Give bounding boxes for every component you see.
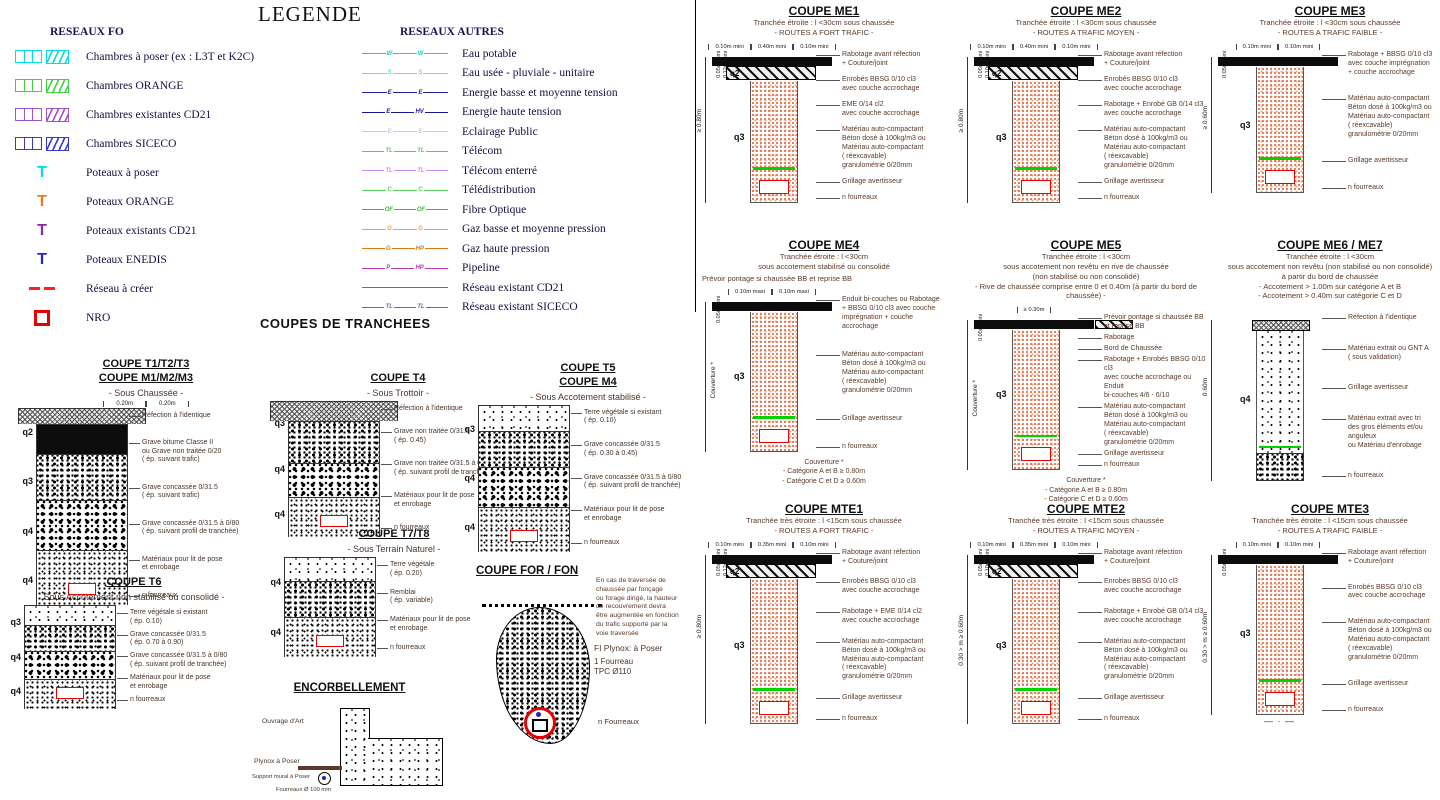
line-segment	[362, 151, 384, 152]
dimension-label: 0.40m mini	[1013, 44, 1055, 50]
coupe-subtitle: - ROUTES A FORT TRAFIC -	[700, 28, 948, 38]
line-segment	[362, 170, 384, 171]
line-segment	[394, 209, 416, 210]
coupe-title: COUPE ME5	[962, 238, 1210, 252]
trench-fill	[750, 312, 798, 452]
line-segment	[423, 73, 448, 74]
line-marker: G	[386, 226, 393, 232]
annotation-label: Rabotage avant réfection + Couture/joint	[842, 549, 946, 567]
grillage-avertisseur	[753, 416, 795, 419]
chamber-cell	[33, 109, 41, 120]
soil-layer	[478, 405, 570, 431]
coupe-me4: COUPE ME4Tranchée étroite : l <30cmsous …	[700, 238, 948, 486]
legend-item: CCTélédistribution	[362, 181, 692, 201]
layer-label: Grave concassée 0/31.5 à 0/80 ( ép. suiv…	[130, 652, 258, 670]
trench-column	[284, 557, 376, 657]
coupe-subtitle: (non stabilisé ou non consolidé)	[962, 272, 1210, 282]
annotation-label: Enrobés BBSG 0/10 cl3 avec couche accroc…	[1104, 76, 1208, 94]
line-sample-icon: WW	[362, 51, 448, 57]
chamber-cell	[16, 138, 25, 149]
annotation-label: Rabotage avant réfection + Couture/joint	[1348, 549, 1440, 567]
left-dim-line	[705, 555, 706, 724]
dimension-label: 0.10m mini	[970, 44, 1012, 50]
legend-item: TPoteaux existants CD21	[6, 216, 356, 245]
coupe-subtitle: Tranchée très étroite : l <15cm sous cha…	[962, 516, 1210, 526]
soil-layer	[284, 557, 376, 581]
fourreau-dot	[536, 712, 541, 717]
annotation-labels: Réfection à l'identiqueMatériau extrait …	[1348, 314, 1440, 481]
dimension-label: 0.10m mini	[793, 542, 835, 548]
coupe-subtitle: sous accotement non revêtu en rive de ch…	[962, 262, 1210, 272]
fourreau-box	[532, 719, 548, 732]
line-segment	[426, 170, 448, 171]
legend-item-label: Télécom enterré	[448, 165, 537, 177]
line-marker: HP	[415, 246, 425, 252]
line-sample-icon: GG	[362, 226, 448, 232]
annotation-label: Grillage avertisseur	[1348, 680, 1440, 689]
coupe-subtitle: Tranchée étroite : l <30cm	[700, 252, 948, 262]
line-segment	[362, 268, 385, 269]
annotation-labels: Rabotage + BBSG 0/10 cl3 avec couche imp…	[1348, 51, 1440, 193]
axis-centerline: — · —	[1264, 716, 1295, 726]
pole-t-icon: T	[37, 165, 47, 181]
legend-item-label: Energie basse et moyenne tension	[448, 87, 618, 99]
annotation-labels: Rabotage avant réfection + Couture/joint…	[1104, 51, 1208, 203]
line-sample-icon: CC	[362, 187, 448, 193]
couverture-note-line: Couverture *	[962, 476, 1210, 485]
annotation-label: Matériau extrait ou GNT A ( sous validat…	[1348, 345, 1440, 363]
legend-item: SSEau usée - pluviale - unitaire	[362, 64, 692, 84]
line-segment	[393, 53, 417, 54]
line-marker: HV	[414, 109, 424, 115]
encorbellement-drawing: Ouvrage d'Art Plynox à Poser Support mur…	[252, 694, 447, 794]
annotation-label: Enduit bi-couches ou Rabotage + BBSG 0/1…	[842, 296, 946, 332]
chambers-symbol	[6, 137, 78, 151]
annotation-label: Grillage avertisseur	[1104, 450, 1208, 459]
dimension-label: 0.10m maxi	[772, 289, 816, 295]
asphalt-cap	[712, 302, 832, 311]
legend-item-label: Pipeline	[448, 262, 500, 274]
couverture-note-line: - Catégorie A et B ≥ 0.80m	[962, 486, 1210, 495]
left-dim-line	[1211, 555, 1212, 715]
layer-label: Grave concassée 0/31.5 à 0/80 ( ép. suiv…	[142, 520, 270, 538]
dimension-label: 0.10m mini	[1278, 542, 1320, 548]
soil-layer	[36, 424, 128, 454]
annotation-label: Prévoir pontage si chaussée BB et repris…	[1104, 314, 1208, 332]
coupe-me2: COUPE ME2Tranchée étroite : l <30cm sous…	[962, 4, 1210, 207]
line-segment	[362, 229, 386, 230]
chamber-cell	[33, 138, 41, 149]
annotation-label: Grillage avertisseur	[842, 415, 946, 424]
grillage-avertisseur	[1259, 446, 1301, 449]
legend-item-label: Eclairage Public	[448, 126, 538, 138]
plynox-label: Plynox à Poser	[254, 758, 300, 766]
left-dim-line	[967, 57, 968, 203]
line-segment	[426, 151, 448, 152]
legend-item-label: Gaz haute pression	[448, 243, 550, 255]
pole-t-icon: T	[37, 252, 47, 268]
q3-label: q3	[996, 640, 1007, 650]
annotation-label: Matériau auto-compactant Béton dosé à 10…	[1104, 638, 1208, 683]
dimension-label: 0.20m	[146, 401, 189, 407]
fourreau-ring	[524, 707, 556, 739]
chamber-diag-icon	[46, 137, 69, 151]
annotation-label: Matériau auto-compactant Béton dosé à 10…	[842, 351, 946, 396]
q-label: q4	[270, 577, 281, 587]
layer-labels: Terre végétale si existant ( ép. 0.10)Gr…	[130, 605, 258, 709]
top-dimensions: 0.10m maxi0.10m maxi	[712, 289, 832, 295]
chamber-diag-icon	[46, 79, 69, 93]
grillage-avertisseur	[1259, 679, 1301, 682]
q3-label: q3	[1240, 120, 1251, 130]
ouvrage-art-label: Ouvrage d'Art	[262, 718, 304, 726]
coupe-title: COUPE MTE3	[1206, 502, 1440, 516]
legend-item-label: NRO	[78, 312, 110, 324]
legend-item-label: Energie haute tension	[448, 106, 561, 118]
line-marker: W	[386, 51, 394, 57]
grillage-avertisseur	[753, 688, 795, 691]
coupe-subtitle: Tranchée étroite : l <30cm sous chaussée	[1206, 18, 1440, 28]
chamber-cell	[16, 80, 25, 91]
coupe-subtitle: - Accotement > 1.00m sur catégorie A et …	[1206, 282, 1440, 292]
coupe-title: COUPE MTE1	[700, 502, 948, 516]
annotation-label: EME 0/14 cl2 avec couche accrochage	[842, 101, 946, 119]
legend-item-label: Eau usée - pluviale - unitaire	[448, 67, 595, 79]
line-sample-icon: SS	[362, 70, 448, 76]
soil-layer	[478, 467, 570, 507]
legend-reseaux-autres: RESEAUX AUTRES WWEau potableSSEau usée -…	[362, 26, 692, 317]
q-labels: q3q4q4	[272, 401, 288, 537]
chamber-cell	[33, 51, 41, 62]
asphalt-cap	[712, 555, 832, 564]
layer-labels: Terre végétale si existant ( ép. 0.10)Gr…	[584, 405, 712, 552]
chamber-cell	[33, 80, 41, 91]
trench-column	[24, 605, 116, 709]
annotation-label: Matériau auto-compactant Béton dosé à 10…	[842, 126, 946, 171]
coupe-titles: COUPE T1/T2/T3COUPE M1/M2/M3	[20, 358, 272, 386]
pole-symbol: T	[6, 223, 78, 239]
annotation-labels: Rabotage avant réfection + Couture/joint…	[1104, 549, 1208, 724]
left-dim-line	[1211, 57, 1212, 193]
line-marker: OF	[384, 207, 394, 213]
grillage-avertisseur	[1015, 167, 1057, 170]
coupe-titles: COUPE T6	[8, 576, 260, 590]
coupe-drawing: 0.10m mini0.10m mini0.05m mini≥ 0.60mq3R…	[1206, 41, 1440, 197]
chamber-cell	[25, 109, 34, 120]
coupe-drawing: 0.10m mini0.40m mini0.10m mini0.05m mini…	[700, 41, 948, 207]
legend-item: Chambres existantes CD21	[6, 100, 356, 129]
coupe-subtitle: - ROUTES A TRAFIC MOYEN -	[962, 526, 1210, 536]
annotation-label: Réfection à l'identique	[1348, 314, 1440, 323]
line-marker: TL	[384, 168, 393, 174]
line-segment	[393, 92, 418, 93]
pole-symbol: T	[6, 165, 78, 181]
left-dim-line	[1211, 320, 1212, 481]
q-label: q4	[10, 686, 21, 696]
fourreaux-100-label: Fourreaux Ø 100 mm	[276, 787, 331, 794]
annotation-label: Enrobés BBSG 0/10 cl3 avec couche accroc…	[842, 76, 946, 94]
q3-label: q3	[996, 132, 1007, 142]
fourreaux-box	[56, 687, 84, 699]
asphalt-cap	[974, 320, 1094, 329]
q-label: q4	[22, 526, 33, 536]
grillage-avertisseur	[1259, 157, 1301, 160]
asphalt-cap	[974, 57, 1094, 66]
dimension-label: 0.35m mini	[1013, 542, 1055, 548]
coupe-subtitle: Tranchée très étroite : l <15cm sous cha…	[1206, 516, 1440, 526]
legend-item-label: Poteaux à poser	[78, 167, 159, 179]
legend-item-label: Chambres SICECO	[78, 138, 176, 150]
line-sample-icon: EE	[362, 90, 448, 96]
left-dim-label: ≥ 0.60m	[1202, 106, 1209, 129]
drawing-sheet: LEGENDE RESEAUX FO Chambres à poser (ex …	[0, 0, 1440, 800]
top-dimensions: 0.20m0.20m	[20, 401, 272, 407]
coupe-title: COUPE T5	[462, 362, 714, 376]
annotation-label: Grillage avertisseur	[842, 694, 946, 703]
coupe-subtitle: Tranchée étroite : l <30cm sous chaussée	[700, 18, 948, 28]
coupe-subtitle: Sous Accotement non stabilisé ou consoli…	[8, 592, 260, 602]
annotation-label: Matériau auto-compactant Béton dosé à 10…	[842, 638, 946, 683]
coupe-subtitle: - ROUTES A TRAFIC FAIBLE -	[1206, 526, 1440, 536]
coupe-body: q3q4q4Terre végétale si existant ( ép. 0…	[8, 605, 260, 709]
dimension-label: 0.10m mini	[1055, 44, 1097, 50]
legend-item-label: Poteaux ORANGE	[78, 196, 174, 208]
line-sample-icon: EE	[362, 129, 448, 135]
asphalt-cap	[1218, 555, 1338, 564]
fi-plynox-label: FI Plynox: à Poser	[594, 643, 662, 654]
coupe-subtitle: Tranchée étroite : l <30cm	[1206, 252, 1440, 262]
coupe-me3: COUPE ME3Tranchée étroite : l <30cm sous…	[1206, 4, 1440, 197]
q3-label: q3	[996, 389, 1007, 399]
dimension-label: 0.10m mini	[708, 542, 750, 548]
reseaux-fo-header: RESEAUX FO	[50, 26, 356, 38]
legend-item-label: Fibre Optique	[448, 204, 526, 216]
coupe-subtitle: Tranchée étroite : l <30cm	[962, 252, 1210, 262]
q2-label: q2	[992, 69, 1001, 78]
q-labels: q4q4	[268, 557, 284, 657]
asphalt-cap	[974, 555, 1094, 564]
legend-item: EHVEnergie haute tension	[362, 103, 692, 123]
soil-layer	[24, 651, 116, 679]
annotation-label: Rabotage avant réfection + Couture/joint	[1104, 549, 1208, 567]
fourreaux-box	[759, 429, 789, 443]
trench-fill	[750, 81, 798, 203]
coupe-body: q2q3q4q4Réfection à l'identiqueGrave bit…	[20, 408, 272, 605]
q-label: q4	[270, 627, 281, 637]
soil-layer	[24, 605, 116, 625]
wall-vertical	[340, 708, 370, 786]
annotation-label: Rabotage avant réfection + Couture/joint	[1104, 51, 1208, 69]
legend-item: Chambres SICECO	[6, 129, 356, 158]
chamber-diag-icon	[46, 50, 69, 64]
line-segment	[362, 92, 387, 93]
soil-layer	[284, 581, 376, 617]
line-segment	[362, 73, 387, 74]
line-segment	[362, 248, 385, 249]
annotation-label: n fourreaux	[842, 194, 946, 203]
q-label: q4	[274, 464, 285, 474]
line-sample-icon: TLTL	[362, 148, 448, 154]
line-segment	[426, 307, 448, 308]
layer-label: Matériaux pour lit de pose et enrobage	[130, 674, 258, 692]
annotation-labels: Rabotage avant réfection + Couture/joint…	[842, 549, 946, 724]
line-segment	[391, 268, 414, 269]
annotation-label: Matériau auto-compactant Béton dosé à 10…	[1348, 618, 1440, 663]
coupe-mte2: COUPE MTE2Tranchée très étroite : l <15c…	[962, 502, 1210, 728]
trench-fill	[1256, 67, 1304, 193]
dash-icon	[44, 287, 55, 291]
coupe-encorbellement: ENCORBELLEMENT Ouvrage d'Art Plynox à Po…	[252, 682, 447, 794]
fourreaux-box	[1021, 180, 1051, 194]
asphalt-cap	[712, 57, 832, 66]
coupe-subtitle: - Rive de chaussée comprise entre 0 et 0…	[962, 282, 1210, 302]
legend-item-label: Gaz basse et moyenne pression	[448, 223, 606, 235]
annotation-label: n fourreaux	[1348, 184, 1440, 193]
chamber-cell	[25, 138, 34, 149]
coupe-subtitle: - ROUTES A TRAFIC MOYEN -	[962, 28, 1210, 38]
annotation-label: Rabotage + BBSG 0/10 cl3 avec couche imp…	[1348, 51, 1440, 78]
line-segment	[424, 190, 448, 191]
support-mural-label: Support mural à Poser	[252, 774, 310, 781]
grillage-avertisseur	[1015, 688, 1057, 691]
reseaux-autres-items: WWEau potableSSEau usée - pluviale - uni…	[362, 44, 692, 317]
coupe-title: COUPE MTE2	[962, 502, 1210, 516]
q-label: q4	[10, 652, 21, 662]
fourreau-tpc-label: 1 Fourreau TPC Ø110	[594, 657, 633, 677]
trench-column	[288, 401, 380, 537]
coupe-title: COUPE ME1	[700, 4, 948, 18]
soil-layer	[288, 463, 380, 497]
coupe-me5: COUPE ME5Tranchée étroite : l <30cmsous …	[962, 238, 1210, 505]
for-fon-title: COUPE FOR / FON	[476, 565, 693, 577]
pole-t-icon: T	[37, 194, 47, 210]
annotation-label: n fourreaux	[842, 715, 946, 724]
legend-item: Réseau à créer	[6, 274, 356, 303]
chamber-rect-icon	[15, 108, 42, 121]
hatch-cap	[726, 564, 816, 578]
coupe-title: COUPE ME2	[962, 4, 1210, 18]
q-label: q4	[464, 522, 475, 532]
q3-label: q3	[734, 640, 745, 650]
layer-labels: Réfection à l'identiqueGrave bitume Clas…	[142, 408, 270, 605]
fourreau-circle	[318, 772, 331, 785]
fourreaux-box	[759, 180, 789, 194]
q-label: q3	[10, 617, 21, 627]
annotation-label: n fourreaux	[842, 443, 946, 452]
chamber-diag-icon	[46, 108, 69, 122]
coupe-subtitle: - Sous Chaussée -	[20, 388, 272, 398]
line-segment	[362, 53, 386, 54]
layer-label: Grave concassée 0/31.5 ( ép. 0.70 à 0.90…	[130, 631, 258, 649]
annotation-label: Rabotage + EME 0/14 cl2 avec couche accr…	[842, 608, 946, 626]
legend-item-label: Réseau existant CD21	[448, 282, 564, 294]
q2-label: q2	[730, 567, 739, 576]
annotation-label: n fourreaux	[1348, 706, 1440, 715]
annotation-label: Bord de Chaussée	[1104, 345, 1208, 354]
for-fon-note: En cas de traversée de chaussée par fonç…	[596, 577, 679, 639]
coupe-title: COUPE ME4	[700, 238, 948, 252]
soil-layer	[478, 431, 570, 467]
refection-cap	[1252, 320, 1310, 331]
fourreaux-box	[1265, 170, 1295, 184]
line-segment	[393, 131, 418, 132]
couverture-label: Couverture *	[710, 362, 717, 399]
trench-column	[36, 408, 128, 605]
fourreau-dot	[322, 776, 326, 780]
line-marker: W	[417, 51, 425, 57]
soil-layer	[18, 408, 146, 424]
legend-item-label: Poteaux existants CD21	[78, 225, 197, 237]
annotation-label: n fourreaux	[1348, 472, 1440, 481]
q-label: q4	[464, 473, 475, 483]
line-marker: TL	[384, 148, 393, 154]
q-label: q3	[464, 424, 475, 434]
plynox-plate	[298, 766, 342, 770]
coupe-subtitle: sous accotement non revêtu (non stabilis…	[1206, 262, 1440, 272]
couverture-notes: Couverture *- Catégorie A et B ≥ 0.80m- …	[700, 458, 948, 486]
trench-fill	[1256, 565, 1304, 715]
left-dim-label: ≥ 0.80m	[958, 109, 965, 132]
dimension-label: 0.10m mini	[793, 44, 835, 50]
coupe-title: COUPE M1/M2/M3	[20, 372, 272, 386]
line-segment	[392, 248, 415, 249]
couverture-note-line: - Catégorie C et D ≥ 0.60m	[700, 477, 948, 486]
dimension-label: 0.10m mini	[1055, 542, 1097, 548]
chamber-rect-icon	[15, 50, 42, 63]
nro-square-icon	[34, 310, 50, 326]
annotation-label: Rabotage + Enrobé GB 0/14 cl3 avec couch…	[1104, 608, 1208, 626]
line-segment	[362, 112, 385, 113]
coupe-subtitle: - Accotement > 0.40m sur catégorie C et …	[1206, 291, 1440, 301]
legend-item: Réseau existant CD21	[362, 278, 692, 298]
coupe-titles: COUPE T5COUPE M4	[462, 362, 714, 390]
chamber-cell	[25, 51, 34, 62]
legend-item: TPoteaux à poser	[6, 158, 356, 187]
legend-item-label: Poteaux ENEDIS	[78, 254, 167, 266]
line-sample-icon: GHP	[362, 246, 448, 252]
line-marker: OF	[416, 207, 426, 213]
line-segment	[391, 112, 414, 113]
q-label: q4	[274, 509, 285, 519]
fourreaux-box	[1021, 701, 1051, 715]
line-sample-icon	[362, 287, 448, 288]
left-dim-label: 0.60m	[1202, 378, 1209, 396]
legend-item: WWEau potable	[362, 44, 692, 64]
coupe-title: COUPE ME6 / ME7	[1206, 238, 1440, 252]
q-label: q3	[22, 476, 33, 486]
q-labels: q3q4q4	[462, 405, 478, 552]
layer-label: n fourreaux	[584, 539, 712, 548]
line-segment	[425, 268, 448, 269]
coupe-drawing: 0.60mq4Réfection à l'identiqueMatériau e…	[1206, 304, 1440, 485]
annotation-label: Matériau auto-compactant Béton dosé à 10…	[1104, 126, 1208, 171]
legend-item: TPoteaux ORANGE	[6, 187, 356, 216]
coupes-section-title: COUPES DE TRANCHEES	[260, 316, 431, 331]
annotation-label: Grillage avertisseur	[842, 178, 946, 187]
fourreaux-box	[1265, 692, 1295, 706]
annotation-label: Rabotage avant réfection + Couture/joint	[842, 51, 946, 69]
legend-item-label: Chambres à poser (ex : L3T et K2C)	[78, 51, 254, 63]
soil-layer	[24, 625, 116, 651]
pole-t-icon: T	[37, 223, 47, 239]
chambers-symbol	[6, 50, 78, 64]
coupe-mte1: COUPE MTE1Tranchée très étroite : l <15c…	[700, 502, 948, 728]
top-dimensions: 0.10m mini0.40m mini0.10m mini	[974, 44, 1094, 50]
top-dimensions: ≥ 0.30m	[974, 307, 1094, 313]
left-dim-line	[705, 302, 706, 452]
dimension-label: ≥ 0.30m	[1017, 307, 1052, 313]
line-segment	[362, 131, 387, 132]
